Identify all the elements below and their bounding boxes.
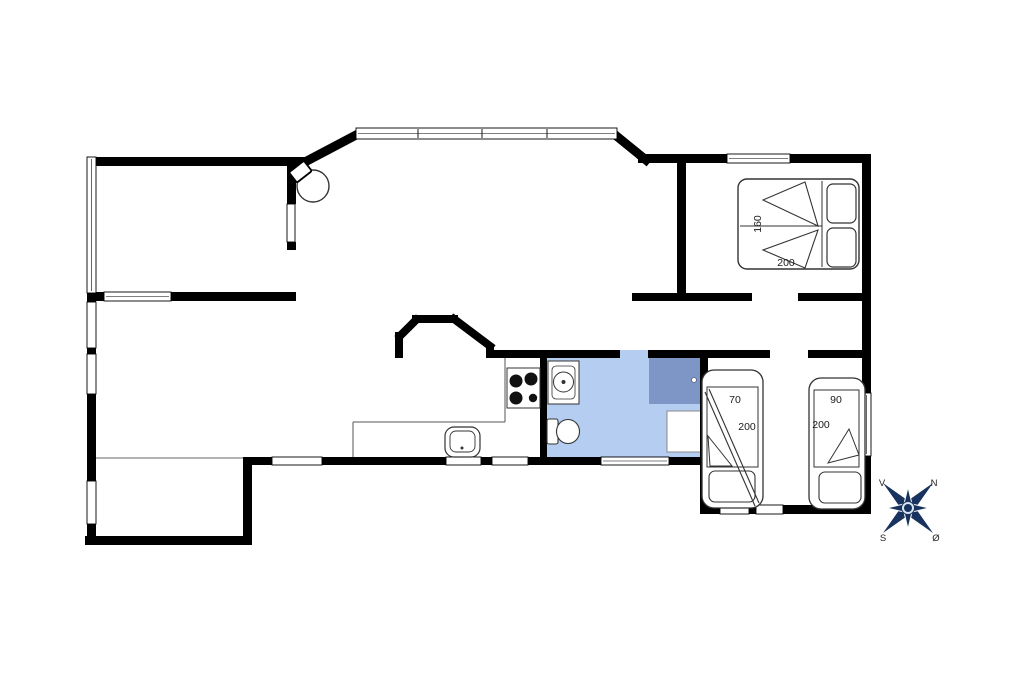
dimension-label: 90 bbox=[830, 394, 842, 406]
door-leaf bbox=[287, 204, 295, 242]
wall-segment bbox=[540, 352, 547, 465]
floorplan-page: 160 200 70 200 90 200 V N S Ø bbox=[0, 0, 1024, 682]
pillow bbox=[819, 472, 861, 503]
kitchen-sink-icon bbox=[445, 427, 480, 457]
wall-segment bbox=[87, 348, 96, 354]
burner bbox=[529, 394, 537, 402]
pillow bbox=[709, 471, 755, 502]
single-bed-icon bbox=[702, 370, 763, 508]
vestibule-chamfer-wall bbox=[454, 319, 490, 346]
floorplan-drawing: 160 200 70 200 90 200 V N S Ø bbox=[0, 0, 1024, 682]
wall-segment bbox=[543, 457, 601, 465]
burner bbox=[510, 392, 523, 405]
toilet-bowl bbox=[557, 420, 580, 444]
wall-segment bbox=[494, 350, 620, 358]
dimension-label: 200 bbox=[812, 419, 830, 431]
wall-segment bbox=[171, 292, 296, 301]
burner bbox=[510, 375, 523, 388]
wall-segment bbox=[85, 536, 252, 545]
pillow bbox=[827, 184, 856, 223]
wall-segment bbox=[287, 242, 296, 250]
compass-label-east: Ø bbox=[932, 533, 940, 544]
wall-segment bbox=[87, 524, 96, 545]
wall-segment bbox=[481, 457, 492, 465]
compass-label-west: V bbox=[879, 478, 886, 489]
wall-segment bbox=[322, 457, 446, 465]
washbasin-icon bbox=[548, 361, 579, 404]
window bbox=[492, 457, 528, 465]
wall-segment bbox=[790, 154, 871, 163]
chamfered-wall bbox=[614, 134, 646, 160]
cooktop-icon bbox=[507, 368, 540, 408]
wall-segment bbox=[862, 154, 871, 393]
wall-segment bbox=[808, 350, 862, 358]
kitchen-counter-outline bbox=[353, 358, 505, 457]
window bbox=[87, 354, 96, 394]
wall-segment bbox=[87, 394, 96, 481]
compass-label-south: S bbox=[880, 533, 886, 544]
window bbox=[272, 457, 322, 465]
basin-drain bbox=[562, 380, 566, 384]
toilet-icon bbox=[547, 419, 580, 444]
shower-drain-icon bbox=[692, 378, 697, 383]
window bbox=[446, 457, 481, 465]
burner bbox=[525, 373, 538, 386]
wall-segment bbox=[677, 157, 686, 301]
dimension-label: 200 bbox=[738, 421, 756, 433]
wall-segment bbox=[648, 350, 770, 358]
window bbox=[87, 481, 96, 524]
dimension-label: 160 bbox=[752, 215, 764, 233]
window bbox=[756, 505, 783, 514]
chamfered-wall bbox=[303, 134, 358, 163]
wall-segment bbox=[632, 293, 752, 301]
dimension-label: 70 bbox=[729, 394, 741, 406]
bath-mat bbox=[667, 411, 703, 452]
window bbox=[87, 302, 96, 348]
wall-segment bbox=[243, 457, 252, 545]
compass-hub bbox=[904, 504, 912, 512]
wall-segment bbox=[798, 293, 862, 301]
vestibule-chamfer-wall bbox=[400, 320, 416, 336]
dimension-label: 200 bbox=[777, 257, 795, 269]
wall-segment bbox=[90, 157, 308, 166]
pillow bbox=[827, 228, 856, 267]
sink-drain bbox=[461, 447, 464, 450]
compass-label-north: N bbox=[931, 478, 938, 489]
compass-rose-icon: V N S Ø bbox=[879, 478, 940, 544]
